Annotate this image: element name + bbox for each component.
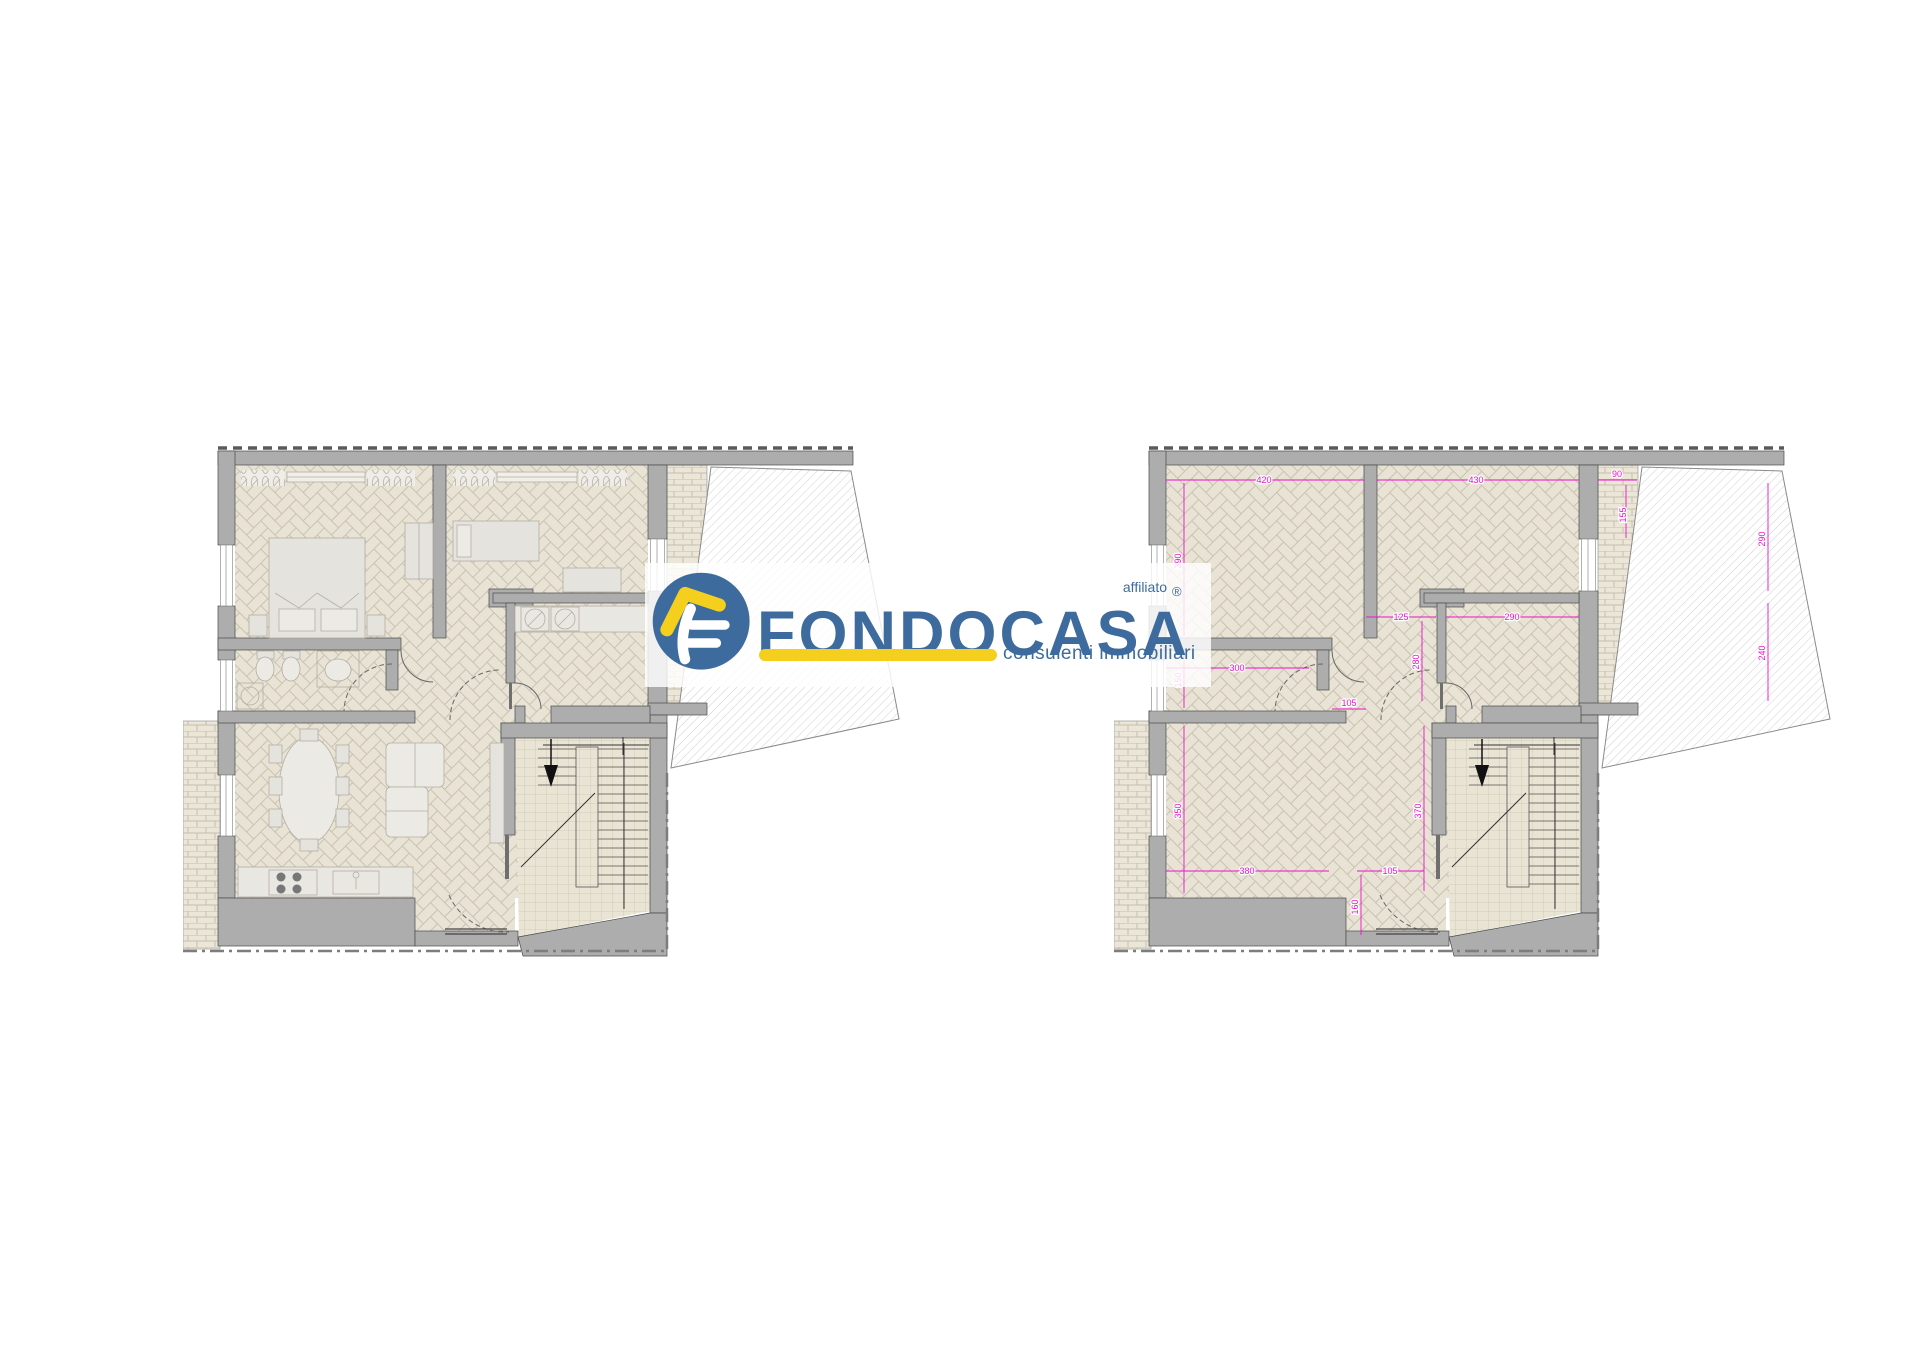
dim-label: 290 xyxy=(1757,531,1767,546)
dim-label: 380 xyxy=(1239,866,1254,876)
brand-tagline: consulenti immobiliari xyxy=(1003,643,1196,665)
fondocasa-f-roof-icon xyxy=(647,567,761,681)
dim-label: 125 xyxy=(1393,612,1408,622)
dim-label: 350 xyxy=(1173,803,1183,818)
dim-label: 155 xyxy=(1618,507,1628,522)
radiator-icon xyxy=(367,470,415,486)
radiator-icon xyxy=(241,470,285,486)
dim-label: 105 xyxy=(1382,866,1397,876)
nightstand xyxy=(249,615,267,636)
floor-plan-dimensioned: 420 430 90 155 390 290 240 300 105 125 2… xyxy=(1114,443,1844,973)
dim-label: 90 xyxy=(1612,469,1622,479)
dim-label: 240 xyxy=(1757,645,1767,660)
radiator-icon xyxy=(453,470,495,486)
affiliato-label: affiliato xyxy=(1073,579,1167,595)
floor-plan-furnished xyxy=(183,443,913,973)
fondocasa-watermark: affiliato FONDOCASA ® consulenti immobil… xyxy=(645,563,1211,687)
kitchen-counter xyxy=(238,867,413,897)
nightstand xyxy=(367,615,385,636)
brand-underline xyxy=(759,649,997,661)
dim-label: 160 xyxy=(1350,899,1360,914)
desk xyxy=(563,568,621,592)
floorplan-image: 420 430 90 155 390 290 240 300 105 125 2… xyxy=(0,0,1920,1358)
wardrobe xyxy=(405,523,433,579)
dim-label: 370 xyxy=(1413,803,1423,818)
dim-label: 420 xyxy=(1256,475,1271,485)
kitchenette-counter xyxy=(515,606,648,632)
dim-label: 105 xyxy=(1341,698,1356,708)
dim-label: 430 xyxy=(1468,475,1483,485)
radiator-icon xyxy=(579,470,627,486)
registered-mark: ® xyxy=(1172,584,1182,599)
dim-label: 290 xyxy=(1504,612,1519,622)
double-bed xyxy=(269,538,365,638)
dim-label: 300 xyxy=(1229,663,1244,673)
dim-label: 280 xyxy=(1411,654,1421,669)
cabinet xyxy=(490,743,504,843)
single-bed xyxy=(453,521,539,561)
